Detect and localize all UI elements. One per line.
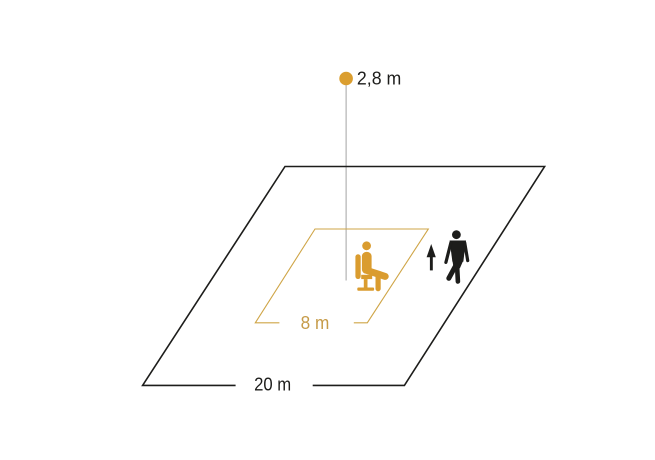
svg-text:20 m: 20 m (254, 374, 291, 394)
svg-text:8 m: 8 m (301, 313, 330, 333)
svg-text:2,8 m: 2,8 m (357, 68, 401, 88)
